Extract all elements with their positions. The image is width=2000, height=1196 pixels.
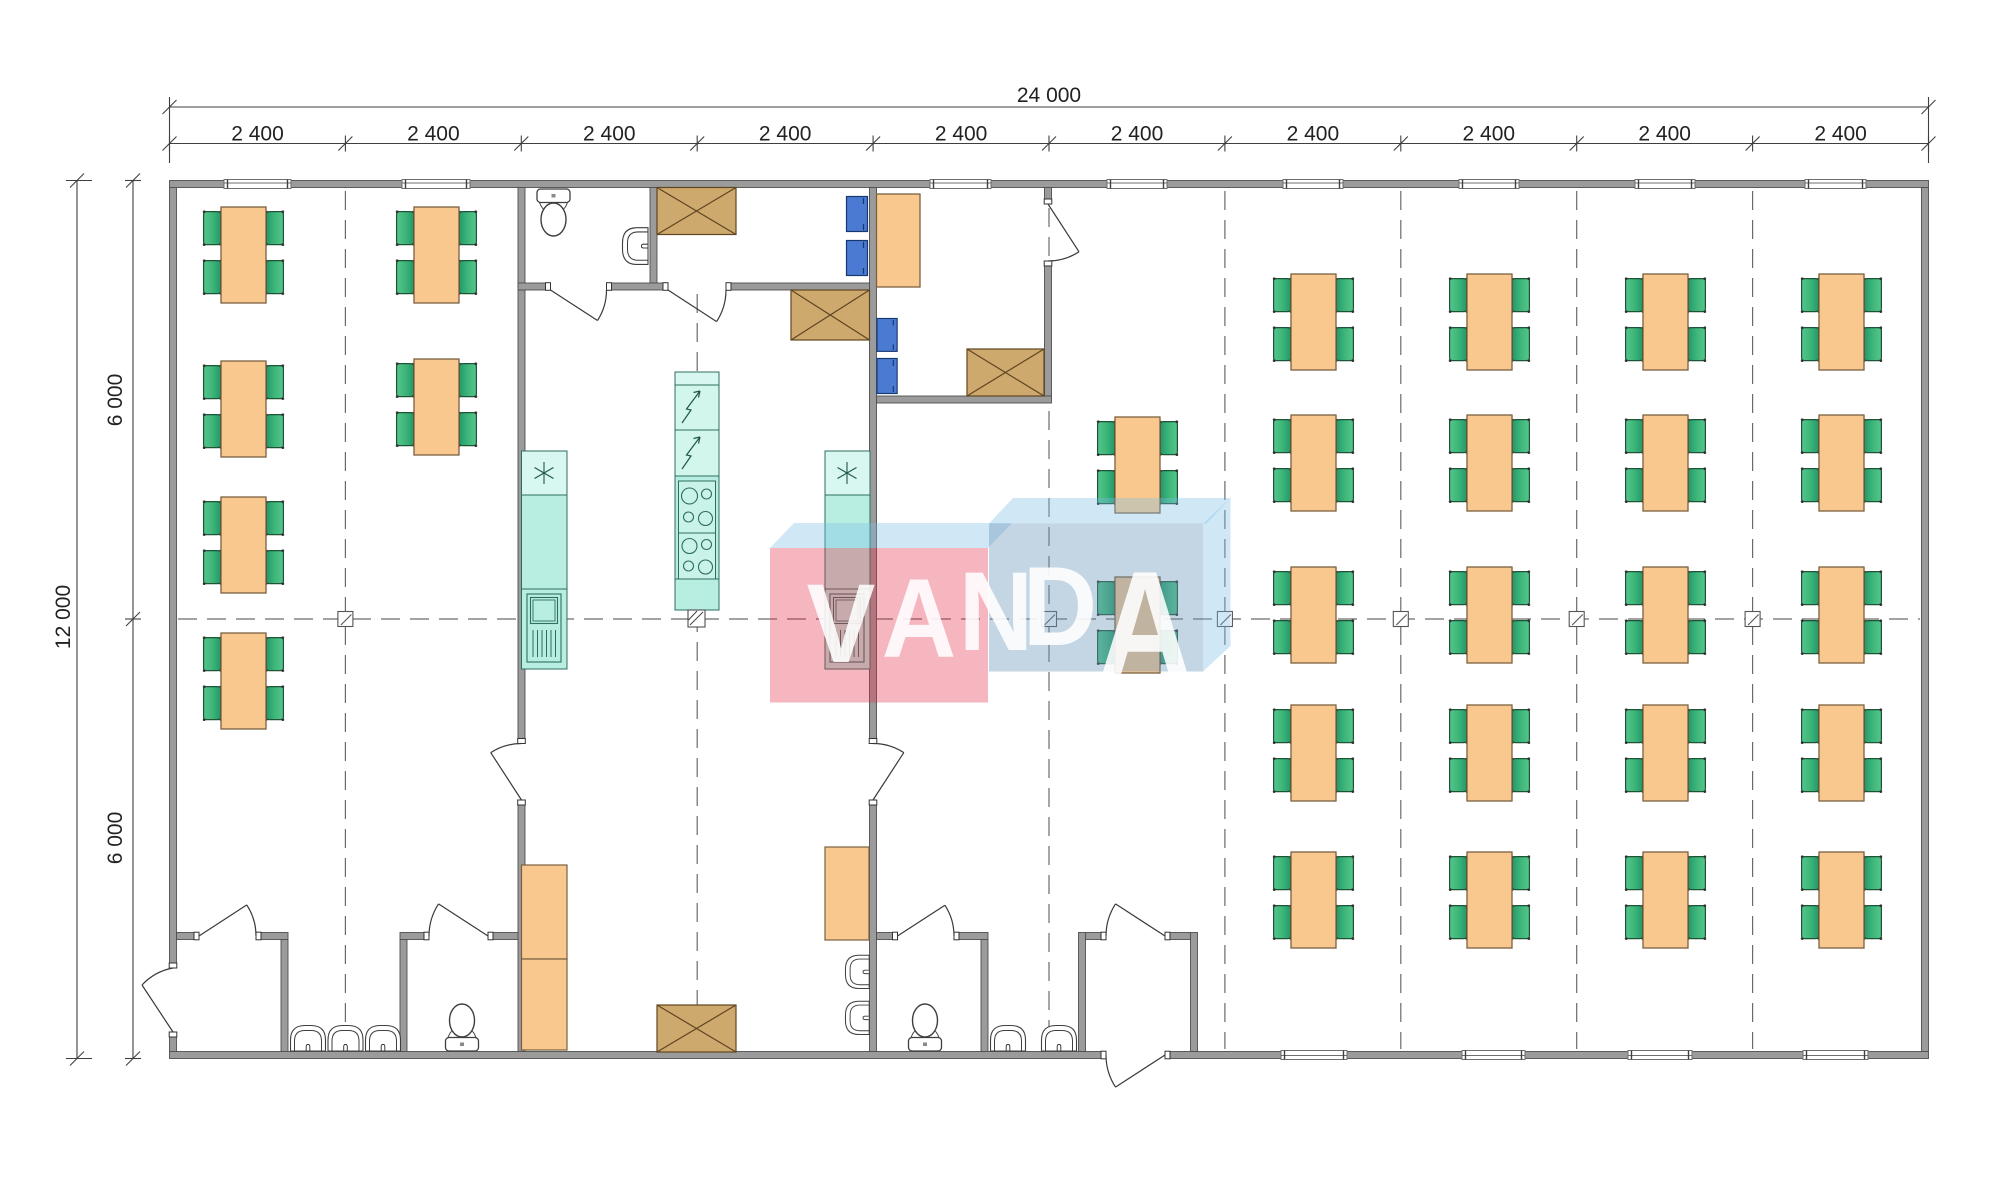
- svg-text:2 400: 2 400: [583, 123, 636, 146]
- svg-text:2 400: 2 400: [231, 123, 284, 146]
- svg-text:2 400: 2 400: [1111, 123, 1164, 146]
- svg-text:A: A: [1097, 540, 1192, 712]
- svg-text:2 400: 2 400: [1814, 123, 1867, 146]
- svg-text:2 400: 2 400: [759, 123, 812, 146]
- svg-text:12 000: 12 000: [52, 585, 75, 649]
- svg-text:2 400: 2 400: [1463, 123, 1516, 146]
- svg-text:24 000: 24 000: [1017, 84, 1081, 107]
- svg-text:6 000: 6 000: [104, 374, 127, 427]
- svg-text:2 400: 2 400: [1638, 123, 1691, 146]
- svg-text:V: V: [807, 561, 876, 686]
- svg-text:6 000: 6 000: [104, 812, 127, 865]
- svg-text:2 400: 2 400: [407, 123, 460, 146]
- svg-text:2 400: 2 400: [1287, 123, 1340, 146]
- svg-text:2 400: 2 400: [935, 123, 988, 146]
- svg-text:D: D: [1023, 544, 1097, 669]
- svg-text:A: A: [882, 556, 956, 681]
